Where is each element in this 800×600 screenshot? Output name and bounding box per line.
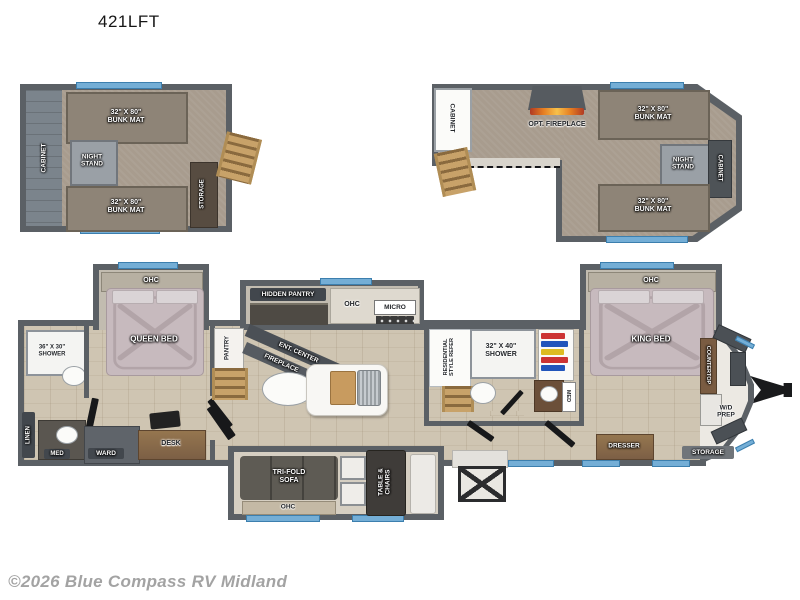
refer-label: RESIDENTIAL STYLE REFER: [443, 337, 455, 377]
desk-chair: [149, 410, 181, 429]
bunk-mat-label: 32" X 80" BUNK MAT: [630, 106, 676, 122]
window: [610, 82, 684, 89]
window: [352, 515, 404, 522]
hidden-pantry: HIDDEN PANTRY: [250, 288, 326, 301]
hidden-pantry-label: HIDDEN PANTRY: [262, 291, 315, 298]
countertop-label: COUNTERTOP: [705, 346, 711, 384]
toilet: [62, 366, 86, 386]
clothes-closet: [538, 329, 574, 381]
fireplace-unit: [528, 86, 586, 110]
table-chairs-label: TABLE & CHAIRS: [378, 467, 393, 497]
med-label: MED: [50, 451, 63, 458]
loft-cabinet-label: CABINET: [448, 104, 455, 133]
queen-bed-label: QUEEN BED: [130, 336, 178, 345]
pillow: [598, 290, 650, 304]
bench: [410, 454, 436, 514]
microwave: MICRO: [374, 300, 416, 315]
opt-fireplace-label: OPT. FIREPLACE: [516, 121, 598, 129]
loft-cabinet-label: CABINET: [40, 144, 47, 173]
ward-label: WARD: [96, 450, 116, 457]
ohc-label: OHC: [281, 503, 295, 510]
ohc-label: OHC: [344, 301, 360, 309]
hitch: [750, 374, 792, 406]
front-window: [730, 352, 746, 386]
night-stand-label: NIGHT STAND: [77, 154, 107, 169]
med-cabinet: MED: [44, 449, 70, 459]
window: [118, 262, 178, 269]
window: [582, 460, 620, 467]
dresser-label: DRESSER: [608, 442, 639, 449]
window: [652, 460, 690, 467]
window: [320, 278, 372, 285]
entry-steps: [458, 466, 506, 502]
ohc-label: OHC: [643, 277, 659, 285]
loft-stairs: [212, 368, 248, 400]
stove-burners: [376, 316, 414, 324]
med-label: MED: [565, 390, 571, 402]
loft-railing: [468, 158, 560, 168]
window: [76, 82, 162, 89]
ward-cabinet: WARD: [88, 448, 124, 459]
flame-icon: [530, 108, 584, 115]
plan-title: 421LFT: [98, 12, 160, 32]
pillow: [652, 290, 704, 304]
sink: [540, 386, 558, 402]
pillow: [112, 290, 154, 304]
shower-label: 32" X 40" SHOWER: [477, 343, 525, 359]
night-stand-label: NIGHT STAND: [668, 157, 698, 172]
shower-label: 36" X 30" SHOWER: [31, 344, 73, 357]
king-bed-label: KING BED: [631, 336, 670, 345]
interior-wall: [210, 440, 215, 460]
loft-cabinet-label: CABINET: [716, 155, 723, 182]
window: [606, 236, 688, 243]
window: [735, 439, 755, 453]
wd-prep-label: W/D PREP: [713, 405, 739, 420]
interior-wall: [84, 326, 89, 398]
pantry-label: PANTRY: [225, 336, 232, 360]
cutting-board: [330, 371, 356, 405]
floorplan-421lft: 421LFT CABINET 32" X 80" BUNK MAT NIGHT …: [0, 0, 800, 600]
door-opening: [490, 411, 524, 416]
island-sink: [357, 370, 381, 406]
storage-label: STORAGE: [692, 449, 724, 456]
window: [600, 262, 674, 269]
window: [246, 515, 320, 522]
loft-storage-label: STORAGE: [200, 179, 207, 209]
front-storage: STORAGE: [682, 446, 734, 459]
bunk-mat-label: 32" X 80" BUNK MAT: [103, 109, 149, 125]
bunk-mat-label: 32" X 80" BUNK MAT: [103, 199, 149, 215]
pantry-cabinet: [250, 303, 328, 325]
copyright-text: ©2026 Blue Compass RV Midland: [8, 572, 287, 592]
bunk-mat-label: 32" X 80" BUNK MAT: [630, 198, 676, 214]
sofa-label: TRI-FOLD SOFA: [266, 469, 312, 485]
pillow: [156, 290, 198, 304]
micro-label: MICRO: [384, 304, 406, 311]
chair: [340, 482, 366, 506]
window: [508, 460, 554, 467]
loft-stairs: [442, 386, 474, 412]
hanging-clothes: [539, 330, 573, 374]
toilet: [470, 382, 496, 404]
linen-label: LINEN: [26, 426, 33, 444]
ohc-label: OHC: [143, 277, 159, 285]
chair: [340, 456, 366, 480]
sink: [56, 426, 78, 444]
desk-label: DESK: [161, 440, 180, 448]
